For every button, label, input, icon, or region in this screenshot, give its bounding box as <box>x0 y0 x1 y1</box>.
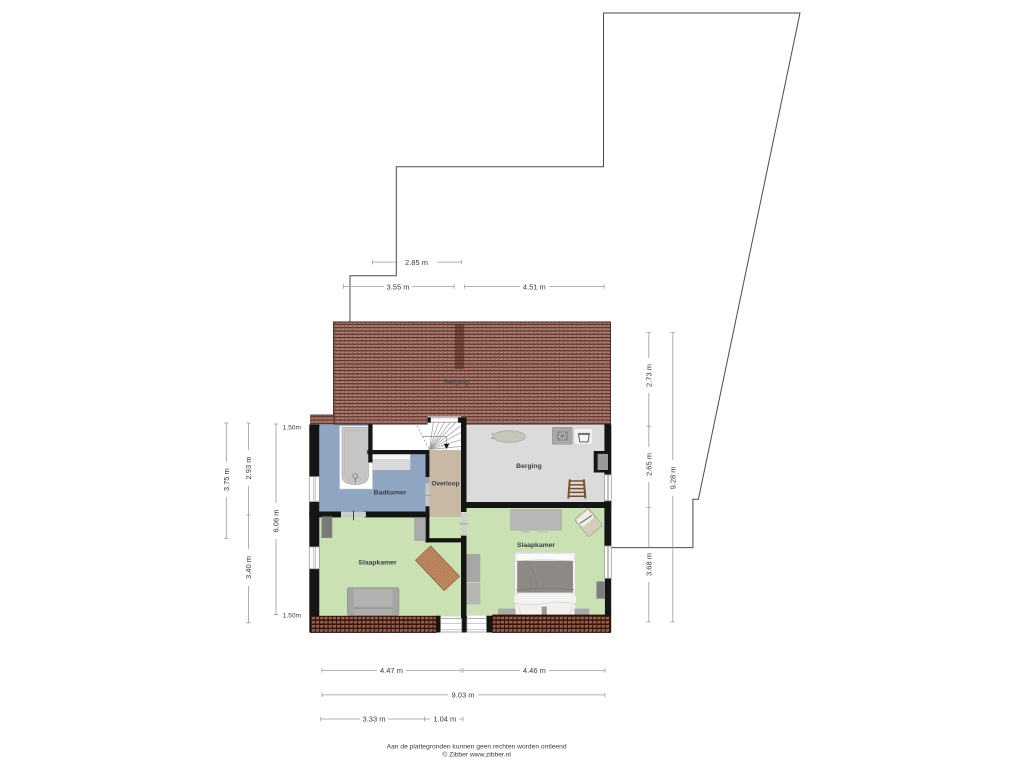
svg-text:Slaapkamer: Slaapkamer <box>358 560 397 567</box>
svg-text:© Zibber www.zibber.nl: © Zibber www.zibber.nl <box>442 751 511 759</box>
svg-text:Aan de plattegronden kunnen ge: Aan de plattegronden kunnen geen rechten… <box>387 743 567 750</box>
svg-text:1.50m: 1.50m <box>283 612 301 619</box>
svg-text:2.85 m: 2.85 m <box>405 258 428 267</box>
svg-text:Berging: Berging <box>444 379 469 386</box>
svg-text:1.04 m: 1.04 m <box>433 715 456 724</box>
svg-text:4.47 m: 4.47 m <box>380 666 403 675</box>
svg-text:6.06 m: 6.06 m <box>272 510 281 533</box>
svg-text:4.51 m: 4.51 m <box>523 282 546 291</box>
svg-text:9.03 m: 9.03 m <box>452 691 475 700</box>
svg-text:Badkamer: Badkamer <box>374 490 407 497</box>
svg-text:1.50m: 1.50m <box>283 425 301 432</box>
svg-text:Overloop: Overloop <box>431 480 459 487</box>
svg-text:3.33 m: 3.33 m <box>363 715 386 724</box>
svg-text:2.73 m: 2.73 m <box>645 364 654 387</box>
svg-text:3.55 m: 3.55 m <box>387 282 410 291</box>
svg-text:4.46 m: 4.46 m <box>523 666 546 675</box>
svg-text:Berging: Berging <box>516 463 542 470</box>
svg-text:3.75 m: 3.75 m <box>222 468 231 491</box>
svg-text:Slaapkamer: Slaapkamer <box>517 542 556 549</box>
svg-text:3.40 m: 3.40 m <box>244 556 253 579</box>
svg-text:9.28 m: 9.28 m <box>669 466 678 489</box>
svg-text:3.68 m: 3.68 m <box>645 553 654 576</box>
svg-text:2.93 m: 2.93 m <box>244 457 253 480</box>
svg-text:2.65 m: 2.65 m <box>645 453 654 476</box>
